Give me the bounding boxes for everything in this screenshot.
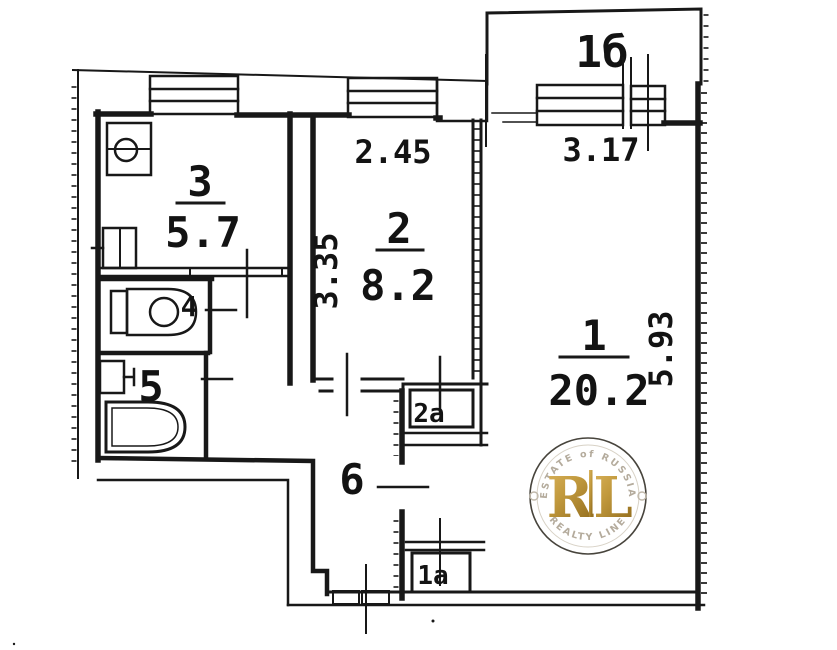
bedroom-number: 2 bbox=[386, 204, 411, 253]
bedroom-bottom-wall bbox=[313, 379, 403, 391]
living-area: 20.2 bbox=[548, 366, 649, 415]
wc: 4 bbox=[98, 279, 236, 353]
balcony-label: 1б bbox=[576, 27, 629, 78]
closet-upper-label: 2а bbox=[413, 399, 444, 429]
bedroom-area: 8.2 bbox=[360, 261, 436, 310]
window-kitchen bbox=[150, 76, 238, 114]
seal-monogram-l: L bbox=[593, 465, 632, 531]
window-bedroom bbox=[348, 78, 437, 117]
seal-monogram-r: R bbox=[547, 465, 594, 531]
wc-number: 4 bbox=[181, 290, 198, 323]
watermark-seal: ESTATE of RUSSIA REALTY LINE R L bbox=[530, 438, 646, 554]
washbasin-icon bbox=[100, 361, 134, 393]
kitchen-number: 3 bbox=[187, 157, 212, 206]
bathroom: 5 bbox=[100, 353, 232, 459]
closet-top-wall bbox=[406, 542, 484, 550]
sink-icon bbox=[107, 123, 151, 175]
scan-speck bbox=[13, 643, 15, 645]
window-living-large bbox=[537, 85, 623, 125]
kitchen-area: 5.7 bbox=[165, 208, 241, 257]
outer-boundary-line-top bbox=[73, 70, 487, 81]
hallway-number: 6 bbox=[339, 455, 364, 504]
living-width-dim: 3.17 bbox=[562, 131, 639, 169]
balcony: 1б bbox=[487, 9, 706, 84]
lower-boundary-inner bbox=[98, 458, 327, 594]
seal-monogram-divider bbox=[589, 470, 593, 517]
living-number: 1 bbox=[581, 311, 606, 360]
closet-bottom-wall bbox=[403, 433, 487, 445]
closet-lower-label: 1а bbox=[417, 561, 448, 591]
floor-plan-page: 1б bbox=[0, 0, 837, 650]
wall-pier bbox=[437, 80, 487, 121]
living-room: 3.17 1 20.2 5.93 bbox=[548, 131, 680, 415]
floor-plan-drawing: 1б bbox=[0, 0, 837, 650]
bedroom-depth-dim: 3.35 bbox=[307, 232, 345, 309]
living-depth-dim: 5.93 bbox=[642, 310, 680, 387]
bedroom: 2.45 3.35 2 8.2 bbox=[307, 120, 481, 445]
bathroom-number: 5 bbox=[138, 362, 163, 411]
kitchen: 3 5.7 bbox=[92, 114, 313, 383]
bedroom-width-dim: 2.45 bbox=[354, 133, 431, 171]
lower-boundary-outer bbox=[98, 480, 288, 605]
scan-speck bbox=[432, 620, 435, 623]
closet-lower: 1а bbox=[406, 519, 484, 592]
